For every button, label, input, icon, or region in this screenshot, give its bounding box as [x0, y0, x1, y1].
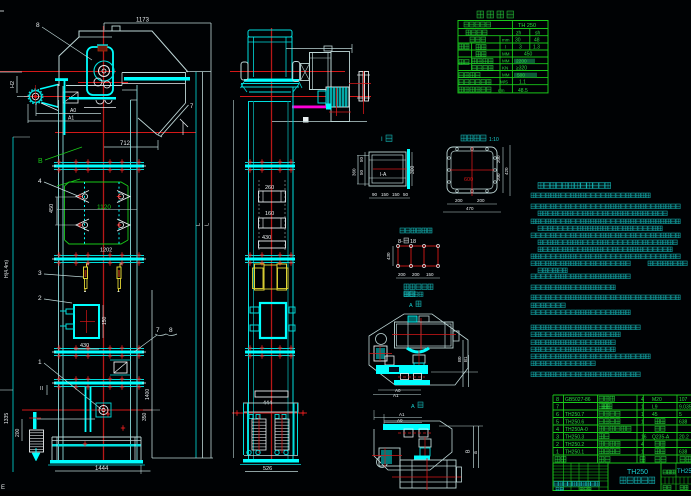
svg-text:MM: MM — [502, 59, 510, 64]
svg-text:L9: L9 — [652, 405, 658, 411]
svg-text:2: 2 — [556, 442, 559, 448]
svg-text:TH250.6: TH250.6 — [565, 420, 584, 426]
svg-text:444: 444 — [263, 401, 272, 407]
svg-text:450: 450 — [49, 204, 55, 213]
svg-text:1: 1 — [641, 420, 644, 426]
svg-text:160: 160 — [265, 211, 274, 217]
svg-text:638: 638 — [679, 450, 688, 456]
svg-text:200: 200 — [496, 173, 501, 181]
svg-text:430: 430 — [262, 235, 271, 241]
svg-text:A: A — [411, 404, 415, 410]
svg-text:48.5: 48.5 — [518, 88, 528, 94]
svg-text:1:10: 1:10 — [489, 137, 499, 143]
svg-text:1120: 1120 — [97, 204, 111, 211]
svg-text:A0: A0 — [70, 108, 76, 114]
svg-text:M20: M20 — [652, 397, 662, 403]
svg-text:200: 200 — [412, 272, 420, 277]
svg-text:A1: A1 — [68, 116, 74, 122]
svg-text:MM: MM — [502, 73, 510, 78]
svg-text:150: 150 — [426, 272, 434, 277]
svg-text:l: l — [505, 45, 506, 50]
svg-text:150: 150 — [392, 192, 400, 197]
svg-text:M/S: M/S — [500, 80, 508, 85]
svg-text:3: 3 — [556, 435, 559, 441]
svg-text:48: 48 — [534, 38, 540, 44]
svg-text:TH25: TH25 — [677, 469, 691, 475]
svg-text:B1: B1 — [463, 356, 468, 362]
svg-text:GB5027-86: GB5027-86 — [565, 397, 591, 403]
svg-text:50: 50 — [403, 192, 409, 197]
svg-text:18: 18 — [410, 239, 416, 245]
svg-text:Q235-A: Q235-A — [652, 435, 670, 441]
svg-text:A1: A1 — [399, 412, 405, 417]
svg-text:sh: sh — [535, 31, 541, 37]
svg-text:1: 1 — [641, 405, 644, 411]
svg-text:MM: MM — [502, 52, 510, 57]
svg-text:1.3: 1.3 — [533, 45, 540, 51]
svg-text:A1: A1 — [393, 393, 399, 398]
svg-text:1: 1 — [641, 450, 644, 456]
svg-text:TH250A-0: TH250A-0 — [565, 427, 588, 433]
svg-text:L: L — [196, 223, 202, 226]
svg-text:TH250: TH250 — [627, 469, 648, 476]
svg-text:TH250.7: TH250.7 — [565, 412, 584, 418]
svg-text:50: 50 — [359, 169, 364, 175]
svg-text:45: 45 — [652, 412, 658, 418]
svg-text:1400: 1400 — [145, 389, 151, 400]
svg-text:1335: 1335 — [4, 413, 10, 424]
svg-text:5: 5 — [556, 420, 559, 426]
svg-text:712: 712 — [120, 141, 131, 147]
svg-text:8-: 8- — [398, 239, 403, 245]
svg-text:4: 4 — [641, 397, 644, 403]
svg-text:30: 30 — [515, 38, 521, 44]
svg-text:I-A: I-A — [380, 172, 387, 178]
svg-text:E: E — [1, 485, 5, 491]
svg-text:TH250.2: TH250.2 — [565, 442, 584, 448]
svg-text:90: 90 — [372, 192, 378, 197]
svg-text:638: 638 — [679, 420, 688, 426]
svg-text:300: 300 — [410, 165, 416, 174]
svg-text:L: L — [205, 223, 211, 226]
svg-text:200: 200 — [15, 428, 21, 437]
svg-text:107: 107 — [679, 397, 688, 403]
svg-text:8: 8 — [169, 327, 173, 334]
svg-text:A: A — [409, 303, 413, 309]
svg-text:2: 2 — [38, 295, 42, 302]
svg-text:200: 200 — [455, 198, 463, 203]
svg-text:8: 8 — [36, 22, 40, 29]
svg-text:9.035: 9.035 — [679, 405, 691, 411]
svg-text:≥320: ≥320 — [516, 66, 527, 72]
svg-text:a: a — [473, 451, 479, 454]
svg-text:4: 4 — [38, 178, 42, 185]
svg-text:1: 1 — [641, 412, 644, 418]
svg-text:r/m: r/m — [498, 88, 505, 93]
svg-text:50: 50 — [359, 156, 364, 162]
svg-text:TH 250: TH 250 — [518, 23, 536, 29]
svg-text:6: 6 — [556, 412, 559, 418]
svg-text:TH250.3: TH250.3 — [565, 435, 584, 441]
svg-text:mm: mm — [502, 38, 510, 43]
svg-text:20.2: 20.2 — [679, 435, 689, 441]
svg-text:350: 350 — [142, 412, 148, 421]
svg-text:H2: H2 — [10, 81, 16, 88]
svg-text:4: 4 — [556, 427, 559, 433]
svg-text:430: 430 — [80, 343, 89, 349]
svg-text:2200: 2200 — [516, 59, 527, 65]
svg-text:1173: 1173 — [136, 18, 150, 24]
svg-text:600: 600 — [464, 177, 473, 183]
svg-text:B: B — [38, 158, 43, 165]
svg-text:360: 360 — [352, 168, 357, 176]
svg-text:8: 8 — [556, 397, 559, 403]
svg-text:470: 470 — [466, 206, 474, 211]
svg-text:420: 420 — [504, 167, 509, 175]
svg-text:260: 260 — [265, 185, 274, 191]
svg-text:450: 450 — [524, 52, 533, 58]
svg-text:B0: B0 — [457, 356, 462, 362]
svg-text:II: II — [40, 386, 44, 392]
svg-text:200: 200 — [496, 155, 501, 163]
svg-text:430: 430 — [386, 252, 391, 260]
svg-text:1: 1 — [556, 450, 559, 456]
svg-text:200: 200 — [477, 198, 485, 203]
svg-text:5: 5 — [679, 412, 682, 418]
svg-text:1202: 1202 — [100, 248, 112, 254]
svg-text:3: 3 — [519, 45, 522, 51]
svg-text:1: 1 — [38, 359, 42, 366]
svg-text:16: 16 — [641, 435, 647, 441]
svg-text:KN: KN — [502, 66, 508, 71]
svg-text:200: 200 — [398, 272, 406, 277]
svg-text:TH250.1: TH250.1 — [565, 450, 584, 456]
svg-text:7: 7 — [556, 405, 559, 411]
svg-text:H(4.4m): H(4.4m) — [4, 260, 10, 278]
svg-text:3: 3 — [38, 270, 42, 277]
svg-text:1.1: 1.1 — [519, 80, 526, 86]
svg-text:500: 500 — [517, 73, 525, 79]
svg-text:7: 7 — [156, 327, 160, 334]
svg-text:zh: zh — [516, 31, 522, 37]
svg-text:4: 4 — [641, 442, 644, 448]
svg-text:150: 150 — [381, 192, 389, 197]
